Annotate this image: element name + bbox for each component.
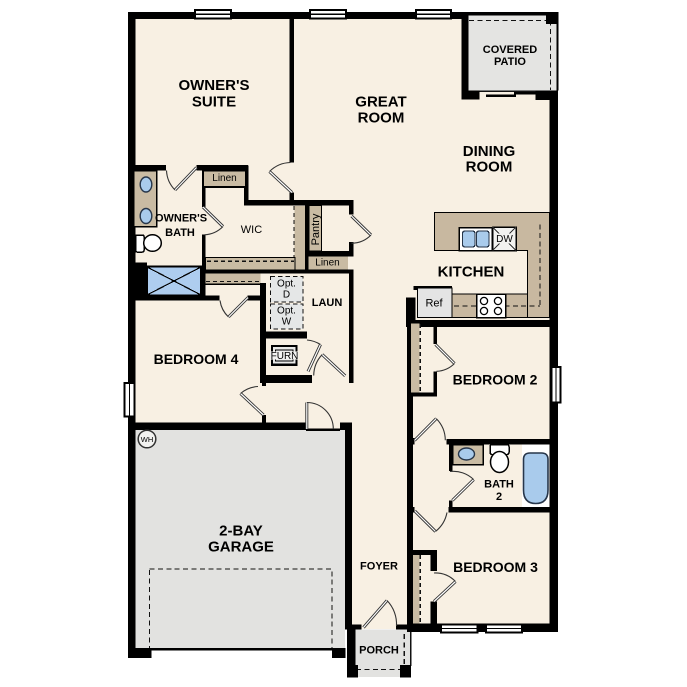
svg-text:FOYER: FOYER [360,561,398,573]
svg-text:PORCH: PORCH [359,645,399,657]
svg-text:COVERED: COVERED [483,44,537,56]
svg-text:W: W [282,317,292,328]
svg-text:BATH: BATH [484,479,514,491]
svg-text:Opt.: Opt. [277,279,296,290]
svg-text:GREAT: GREAT [355,94,406,111]
svg-text:BEDROOM 4: BEDROOM 4 [154,351,239,367]
svg-text:LAUN: LAUN [312,297,343,309]
svg-text:DW: DW [496,234,513,245]
svg-text:Ref: Ref [425,298,443,310]
svg-text:OWNER'S: OWNER'S [178,77,249,94]
svg-text:Linen: Linen [315,258,339,269]
svg-text:DINING: DINING [463,143,516,160]
svg-text:ROOM: ROOM [466,159,513,176]
svg-text:BEDROOM 2: BEDROOM 2 [453,372,538,388]
svg-text:ROOM: ROOM [358,110,405,127]
svg-text:BEDROOM 3: BEDROOM 3 [453,559,538,575]
svg-text:BATH: BATH [165,227,195,239]
svg-text:2-BAY: 2-BAY [219,523,263,540]
svg-text:2: 2 [496,491,502,503]
svg-text:WIC: WIC [241,224,262,236]
svg-text:Linen: Linen [212,173,236,184]
svg-text:FURN: FURN [271,351,299,362]
svg-text:SUITE: SUITE [192,94,236,111]
svg-text:OWNER'S: OWNER'S [155,213,207,225]
svg-text:WH: WH [141,435,154,444]
svg-text:KITCHEN: KITCHEN [438,264,505,281]
svg-text:D: D [283,290,290,301]
svg-text:Opt.: Opt. [277,306,296,317]
svg-text:PATIO: PATIO [494,56,526,68]
svg-text:Pantry: Pantry [310,213,322,245]
svg-text:GARAGE: GARAGE [208,539,274,556]
